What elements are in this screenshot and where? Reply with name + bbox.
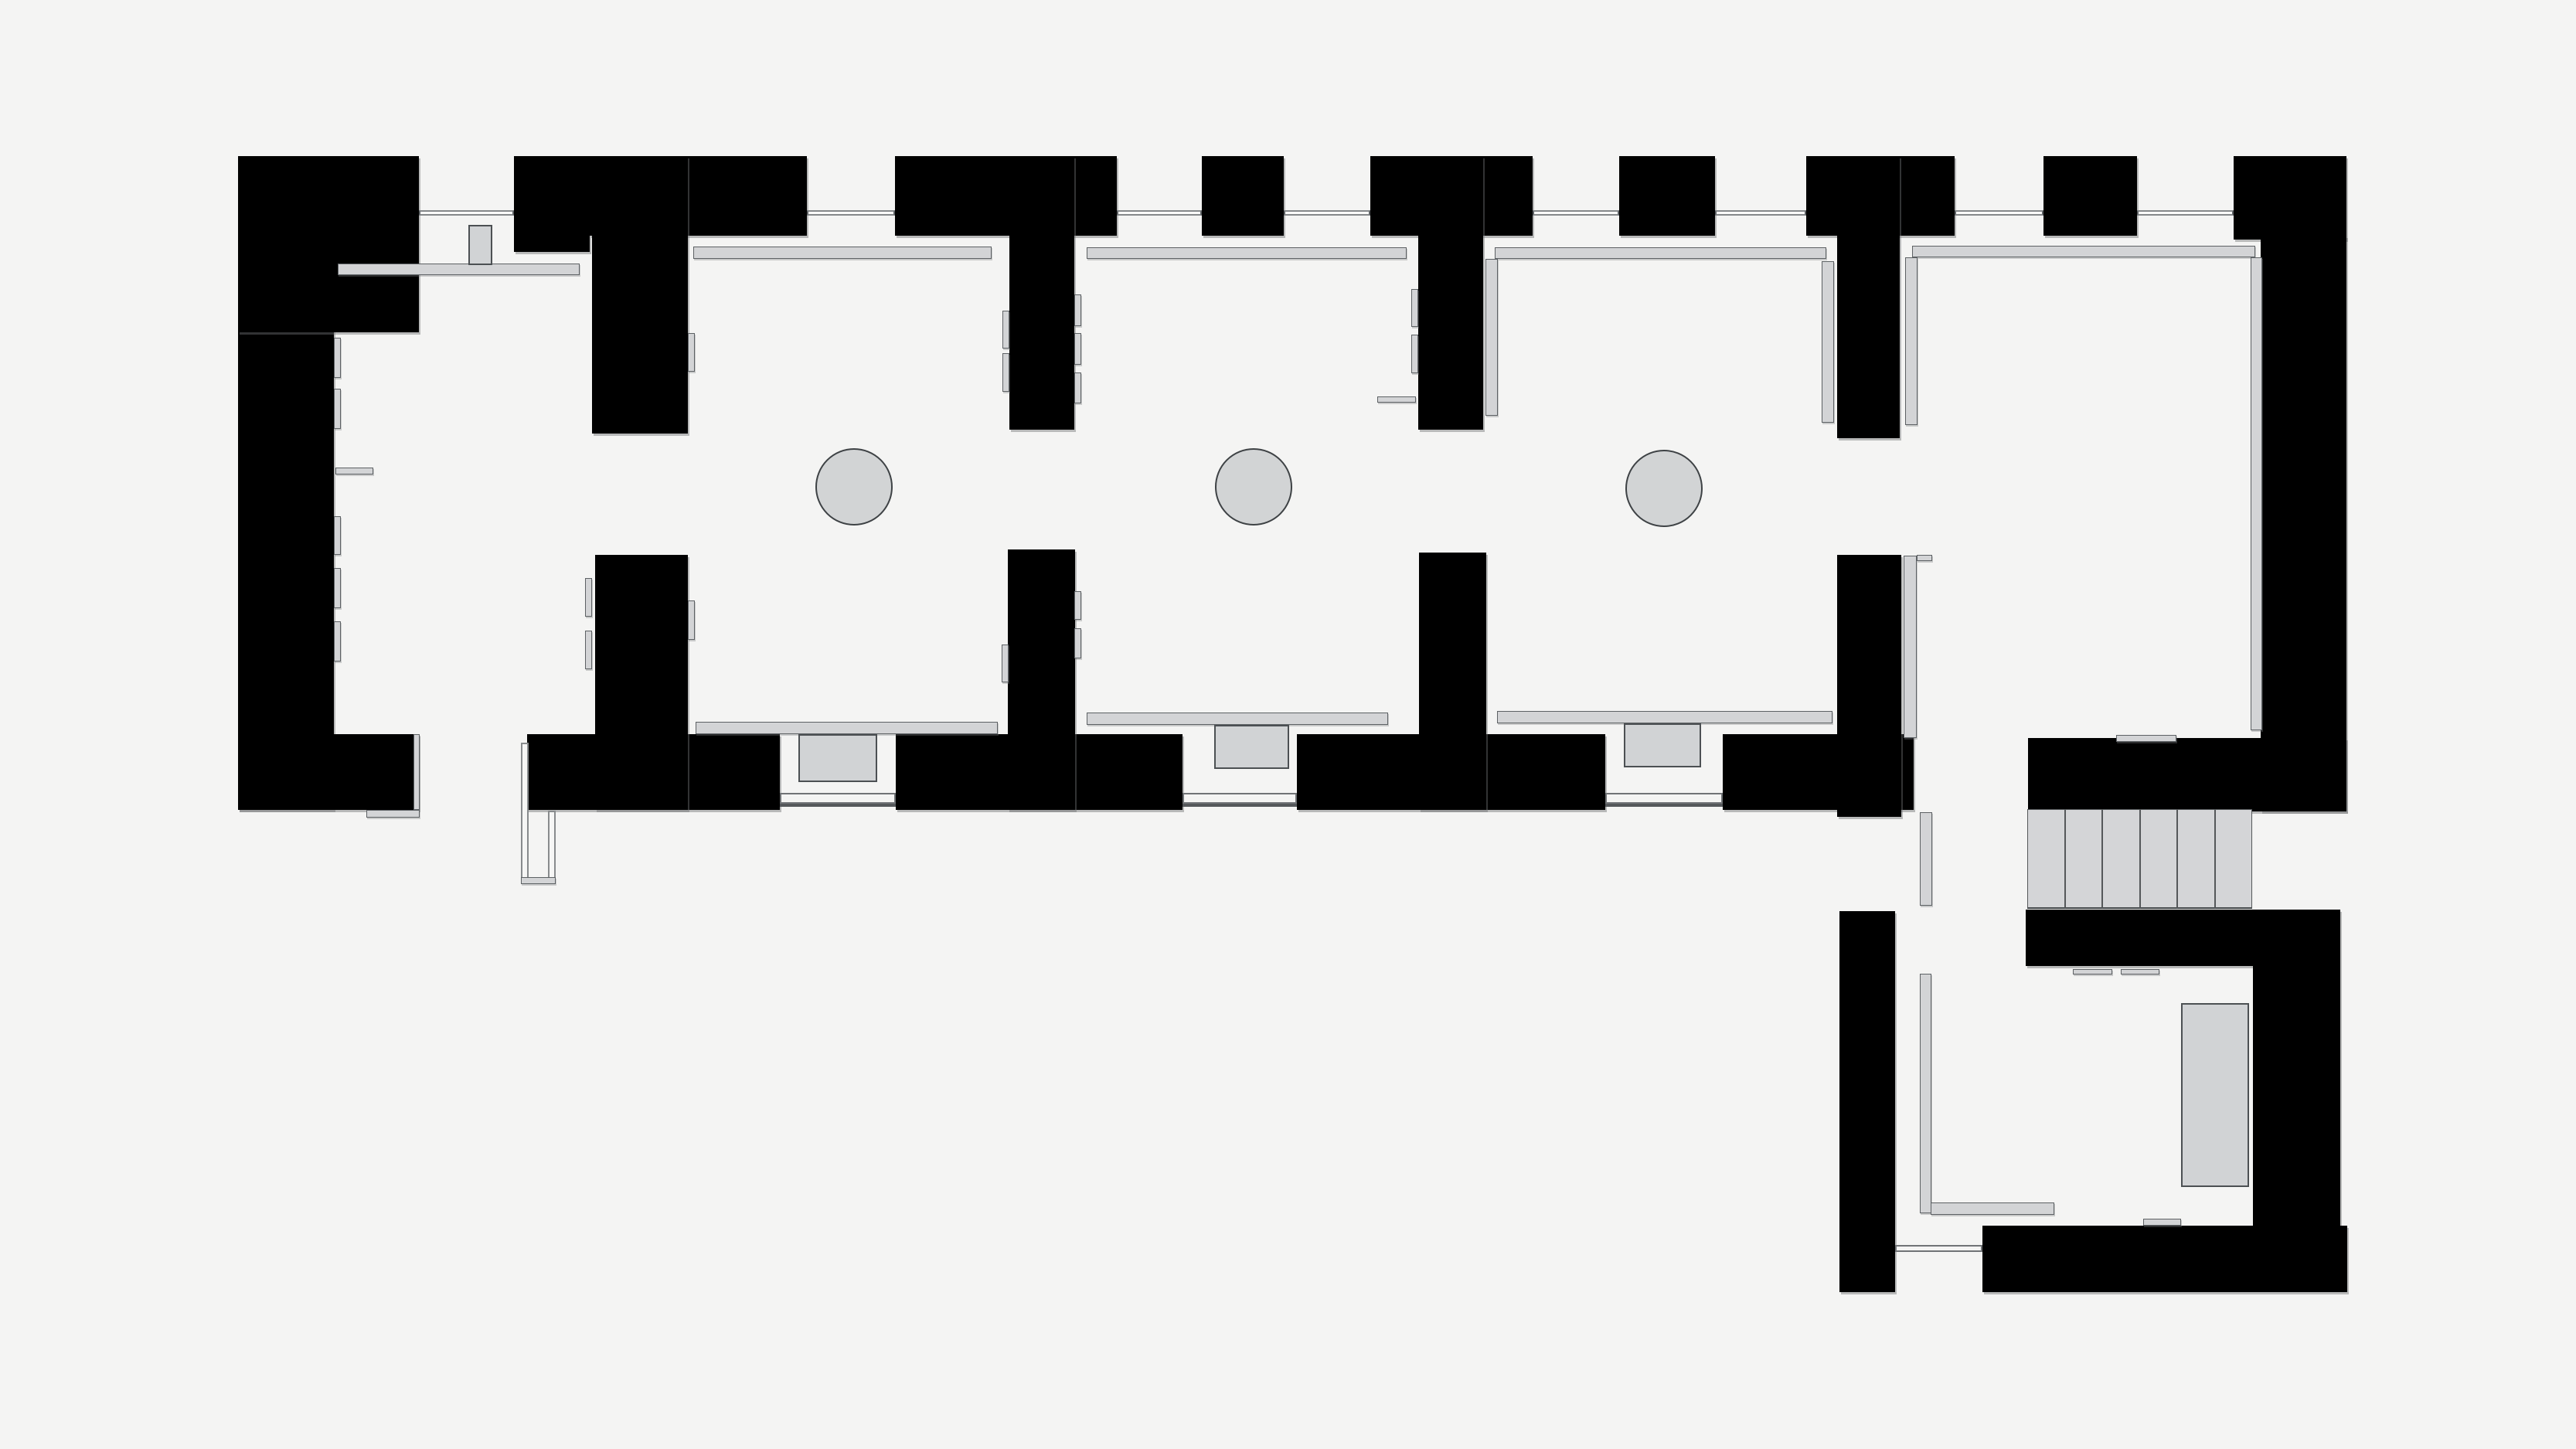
room-b-bottom-lining — [696, 722, 998, 734]
ext-right-wall — [2253, 910, 2340, 1232]
door-sym-exit-frame — [1895, 1245, 1982, 1252]
room-f-bottom-bar — [2143, 1219, 2181, 1226]
partition-bc-top — [1009, 156, 1074, 430]
room-a-west-strip-4 — [334, 568, 341, 608]
channel-bottom — [521, 877, 556, 884]
stair-tread-3 — [2102, 809, 2140, 909]
sw-block-bottom-bar — [366, 810, 420, 818]
window-top-1 — [419, 210, 514, 216]
door-sym-b-sill — [780, 804, 896, 807]
room-d-top-lining — [1495, 247, 1826, 259]
top-pier-6 — [1619, 156, 1715, 236]
partition-de-lower — [1837, 555, 1901, 817]
top-pier-8 — [2043, 156, 2137, 236]
cd-left-strip-1 — [1411, 289, 1418, 327]
partition-de-top — [1837, 156, 1900, 438]
bc-right-strip-1 — [1074, 294, 1081, 326]
stair-tread-4 — [2140, 809, 2178, 909]
ab-left-strip-2 — [585, 631, 592, 669]
corridor-lining-1 — [1920, 812, 1932, 906]
room-e-top-lining — [1912, 246, 2255, 257]
room-f-bottom-lining — [1931, 1202, 2054, 1215]
room-d-west-lining — [1485, 259, 1498, 416]
room-e-west-lining — [1905, 257, 1918, 425]
room-d-bottom-lining — [1497, 711, 1832, 723]
column-room-c — [1215, 448, 1292, 526]
right-wall — [2261, 236, 2346, 811]
room-f-door-bar-2 — [2121, 969, 2159, 975]
room-a-top-lining — [338, 264, 580, 275]
channel-left-leg — [521, 743, 529, 883]
door-sym-d-sill — [1605, 804, 1723, 807]
room-f-furniture — [2181, 1003, 2249, 1187]
ab-right-strip-up — [688, 333, 695, 372]
ext-left-wall — [1839, 911, 1895, 1292]
stair-tread-1 — [2027, 809, 2065, 909]
column-room-b — [815, 448, 893, 526]
column-room-d — [1625, 450, 1703, 527]
room-d-east-lining — [1822, 261, 1834, 423]
partition-cd-bottom — [1419, 553, 1486, 810]
stair-tread-2 — [2065, 809, 2103, 909]
top-pier-3 — [895, 156, 1117, 236]
door-sym-c-sill — [1183, 804, 1297, 807]
cd-left-strip-2 — [1411, 335, 1418, 373]
room-f-top-wall — [2026, 910, 2253, 966]
partition-cd-top — [1418, 156, 1483, 430]
room-a-west-strip-5 — [334, 621, 341, 662]
partition-bc-bottom — [1008, 549, 1075, 810]
door-sym-b-frame — [780, 793, 896, 804]
window-top-7 — [1955, 210, 2043, 216]
sw-block — [238, 734, 419, 810]
room-a-top-stub — [468, 225, 492, 265]
ext-bottom-wall — [1982, 1226, 2347, 1292]
partition-ab-top — [592, 156, 688, 434]
bc-right-strip-3 — [1074, 372, 1081, 403]
sw-block-edge-strip — [413, 734, 420, 810]
top-pier-4 — [1202, 156, 1284, 236]
window-top-8 — [2137, 210, 2234, 216]
bc-right-strip-5 — [1074, 628, 1081, 658]
room-a-west-strip-3 — [334, 516, 341, 555]
room-f-door-bar-1 — [2073, 969, 2112, 975]
partition-ab-bottom — [595, 555, 688, 810]
de-lower-lining-cap — [1917, 555, 1932, 561]
door-sym-c-frame — [1183, 793, 1297, 804]
room-c-top-lining — [1087, 247, 1407, 259]
room-a-west-strip-1 — [334, 338, 341, 378]
window-top-2 — [807, 210, 895, 216]
ab-left-strip-1 — [585, 578, 592, 617]
room-b-top-lining — [693, 247, 992, 259]
ab-right-strip-low — [688, 600, 695, 640]
floor-plan — [0, 0, 2576, 1449]
room-e-bottom-wall — [2028, 738, 2346, 811]
top-pier-room-b-notch — [514, 236, 590, 252]
window-top-4 — [1284, 210, 1370, 216]
room-c-bottom-lining — [1087, 713, 1388, 725]
room-e-door-bar — [2116, 735, 2176, 742]
window-top-6 — [1715, 210, 1806, 216]
window-top-5 — [1533, 210, 1619, 216]
door-sym-d-frame — [1605, 793, 1723, 804]
nw-corner-block — [238, 156, 419, 332]
corridor-lining-2 — [1920, 974, 1931, 1213]
ne-corner-pier — [2234, 156, 2346, 240]
bc-left-strip-3 — [1002, 645, 1009, 682]
de-lower-lining — [1904, 556, 1917, 738]
bc-left-strip-1 — [1002, 311, 1009, 349]
room-a-west-ledge — [335, 468, 373, 474]
stair-tread-5 — [2177, 809, 2215, 909]
stair-tread-6 — [2215, 809, 2253, 909]
bc-right-strip-2 — [1074, 333, 1081, 365]
bc-right-strip-4 — [1074, 591, 1081, 620]
room-c-ledge — [1377, 396, 1416, 403]
bc-left-strip-2 — [1002, 353, 1009, 392]
room-c-bottom-stub — [1214, 725, 1289, 769]
channel-right-leg — [548, 811, 556, 883]
room-a-west-strip-2 — [334, 389, 341, 429]
room-d-bottom-stub — [1624, 723, 1701, 767]
room-b-bottom-stub — [798, 734, 877, 782]
room-e-east-lining — [2251, 257, 2262, 730]
window-top-3 — [1117, 210, 1202, 216]
